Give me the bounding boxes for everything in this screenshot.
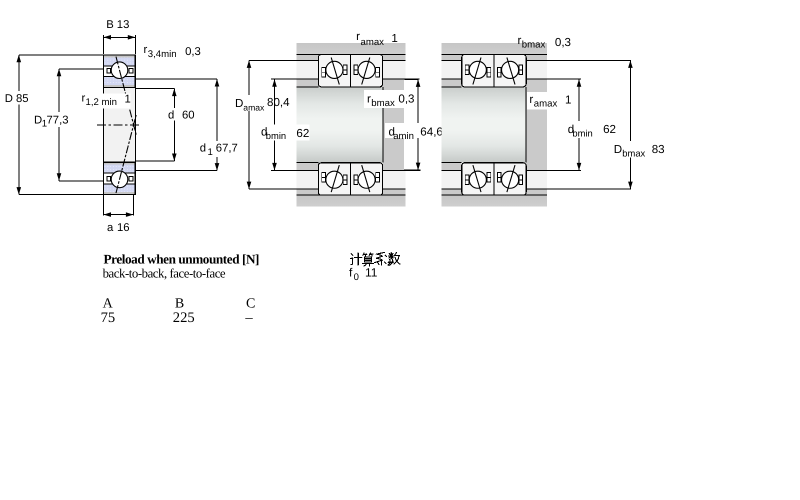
svg-text:83: 83 xyxy=(652,143,665,156)
svg-text:amax: amax xyxy=(534,99,558,110)
svg-text:D: D xyxy=(235,97,243,110)
svg-text:amin: amin xyxy=(393,131,414,142)
svg-text:60: 60 xyxy=(182,109,195,121)
svg-text:225: 225 xyxy=(173,310,195,326)
svg-text:r: r xyxy=(356,30,360,43)
svg-text:r: r xyxy=(529,93,533,106)
svg-text:amax: amax xyxy=(361,37,385,48)
svg-text:0,3: 0,3 xyxy=(185,46,201,58)
svg-text:0,3: 0,3 xyxy=(555,36,571,49)
svg-text:11: 11 xyxy=(365,266,378,280)
svg-text:d: d xyxy=(200,143,206,155)
svg-text:67,7: 67,7 xyxy=(216,143,238,155)
svg-text:85: 85 xyxy=(16,93,29,105)
svg-text:75: 75 xyxy=(101,310,116,326)
svg-text:–: – xyxy=(244,310,253,326)
svg-text:13: 13 xyxy=(117,19,130,31)
svg-text:bmax: bmax xyxy=(622,147,645,158)
svg-text:1: 1 xyxy=(565,94,571,107)
svg-text:0: 0 xyxy=(354,272,359,283)
svg-text:Preload when unmounted [N]: Preload when unmounted [N] xyxy=(104,252,260,267)
svg-text:d: d xyxy=(168,109,174,121)
svg-text:a: a xyxy=(107,222,114,234)
svg-text:D: D xyxy=(614,143,622,156)
svg-text:amax: amax xyxy=(243,102,265,112)
svg-text:back-to-back, face-to-face: back-to-back, face-to-face xyxy=(103,266,226,280)
svg-text:77,3: 77,3 xyxy=(47,114,69,126)
svg-text:bmax: bmax xyxy=(371,98,395,109)
svg-text:bmin: bmin xyxy=(572,128,592,139)
svg-text:0,3: 0,3 xyxy=(398,92,414,105)
svg-text:1,2 min: 1,2 min xyxy=(86,97,117,108)
svg-text:62: 62 xyxy=(603,123,616,136)
svg-text:16: 16 xyxy=(117,222,130,234)
svg-text:80,4: 80,4 xyxy=(267,96,290,109)
svg-text:1: 1 xyxy=(208,147,213,158)
svg-text:1: 1 xyxy=(125,94,131,106)
svg-text:B: B xyxy=(106,19,114,31)
svg-text:bmax: bmax xyxy=(522,40,546,51)
svg-text:64,6: 64,6 xyxy=(420,125,443,138)
svg-text:D: D xyxy=(5,93,13,105)
svg-text:1: 1 xyxy=(391,32,397,45)
svg-text:3,4min: 3,4min xyxy=(148,49,177,60)
svg-text:bmin: bmin xyxy=(266,130,286,141)
svg-text:62: 62 xyxy=(296,127,309,140)
